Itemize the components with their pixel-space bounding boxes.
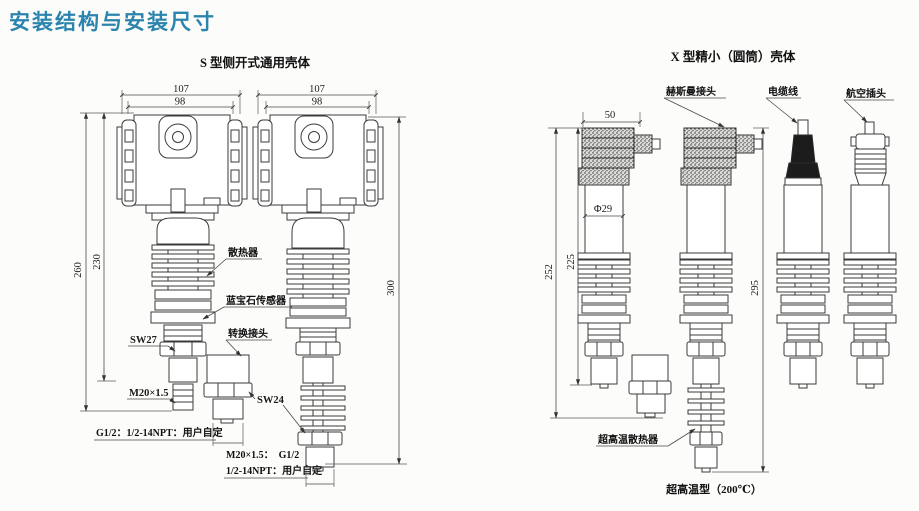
svg-text:赫斯曼接头: 赫斯曼接头 [666, 85, 716, 98]
svg-text:转换接头: 转换接头 [228, 327, 268, 340]
label-conversion-adapter: 转换接头 [226, 327, 272, 356]
label-thread-m20: M20×1.5 [127, 388, 175, 403]
installation-drawing: S 型侧开式通用壳体 [0, 0, 919, 511]
svg-text:1/2-14NPT：用户自定: 1/2-14NPT：用户自定 [226, 464, 322, 477]
svg-text:电缆线: 电缆线 [768, 85, 798, 98]
x-section-title: X 型精小（圆筒）壳体 [671, 49, 796, 64]
svg-text:107: 107 [173, 84, 189, 95]
label-sw24: SW24 [249, 392, 305, 433]
label-high-temp-heatsink: 超高温散热器 [596, 429, 695, 446]
svg-text:295: 295 [750, 280, 761, 296]
svg-text:225: 225 [566, 254, 577, 270]
label-cable: 电缆线 [766, 85, 801, 123]
dim-head-width-inner-left: 98 [128, 97, 233, 115]
svg-text:98: 98 [312, 97, 323, 108]
svg-text:M20×1.5： G1/2: M20×1.5： G1/2 [226, 450, 299, 461]
svg-text:散热器: 散热器 [228, 246, 259, 259]
svg-text:Φ29: Φ29 [594, 204, 612, 215]
label-sapphire-sensor: 蓝宝石传感器 [203, 294, 292, 319]
note-thread-options-left: G1/2：1/2-14NPT：用户自定 [94, 426, 223, 440]
x-adapter-part [629, 355, 671, 417]
label-hirschmann-connector: 赫斯曼接头 [664, 85, 726, 127]
svg-text:G1/2：1/2-14NPT：用户自定: G1/2：1/2-14NPT：用户自定 [96, 426, 223, 439]
caption-high-temp-type: 超高温型（200℃） [665, 482, 762, 496]
x-type-unit-hirschmann [578, 128, 660, 388]
svg-text:蓝宝石传感器: 蓝宝石传感器 [226, 294, 287, 307]
dim-head-width-inner-right: 98 [266, 97, 369, 115]
s-type-unit-long [253, 115, 383, 471]
svg-text:300: 300 [386, 280, 397, 296]
svg-text:252: 252 [544, 264, 555, 280]
datasheet-page: 安装结构与安装尺寸 [0, 0, 919, 511]
x-type-unit-cable [777, 120, 829, 388]
label-aviation-plug: 航空插头 [844, 87, 894, 122]
svg-text:50: 50 [605, 110, 616, 121]
x-type-unit-aviation [844, 122, 896, 388]
svg-text:98: 98 [175, 97, 186, 108]
svg-text:230: 230 [92, 254, 103, 270]
svg-text:M20×1.5: M20×1.5 [129, 388, 169, 399]
svg-text:260: 260 [73, 262, 84, 278]
dim-connector-width-50: 50 [583, 110, 640, 127]
label-heatsink: 散热器 [207, 246, 262, 276]
s-section-title: S 型侧开式通用壳体 [200, 55, 311, 70]
svg-text:107: 107 [309, 84, 325, 95]
svg-text:SW27: SW27 [130, 335, 157, 346]
svg-text:SW24: SW24 [257, 395, 285, 406]
svg-text:超高温散热器: 超高温散热器 [597, 433, 659, 446]
x-type-unit-high-temp [680, 128, 762, 472]
dim-height-230: 230 [92, 113, 116, 381]
svg-text:航空插头: 航空插头 [846, 87, 886, 100]
